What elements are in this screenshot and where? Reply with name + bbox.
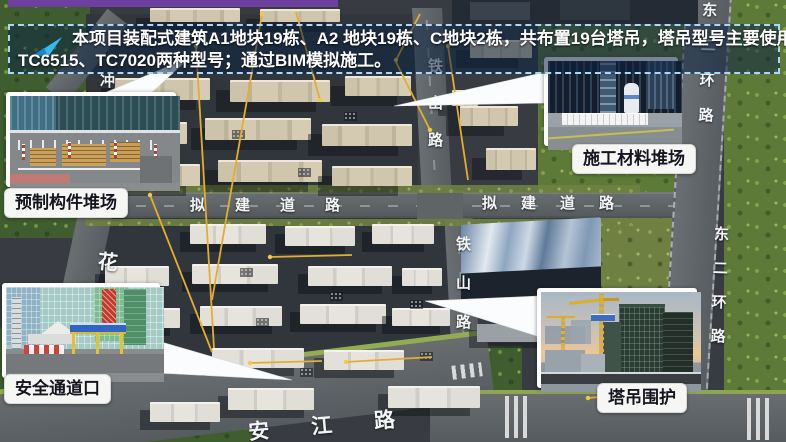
building — [402, 268, 442, 286]
inset-safety-passage — [2, 283, 160, 378]
banner-line-1: 本项目装配式建筑A1地块19栋、A2 地块19栋、C地块2栋，共布置19台塔吊，… — [72, 28, 786, 50]
road-label-tieshan-south: 铁山路 — [452, 236, 473, 353]
window-marker-icon — [300, 368, 313, 377]
info-banner: 本项目装配式建筑A1地块19栋、A2 地块19栋、C地块2栋，共布置19台塔吊，… — [8, 24, 780, 74]
prefab-yard-photo — [10, 96, 180, 191]
building — [460, 106, 518, 126]
building — [372, 224, 434, 244]
bim-site-plan: 铁山路 铁山路 拟建道路 拟建道路 东二环路 东二环路 花 冲 安江路 — [0, 0, 786, 442]
prefab-yard-label: 预制构件堆场 — [4, 188, 128, 218]
material-yard-photo — [548, 61, 682, 150]
building — [285, 226, 355, 246]
building — [150, 402, 220, 422]
banner-line-2: TC6515、TC7020两种型号；通过BIM模拟施工。 — [18, 50, 391, 72]
window-marker-icon — [410, 300, 423, 309]
window-marker-icon — [240, 268, 253, 277]
building — [452, 90, 478, 106]
road-label-nijian-east: 拟建道路 — [482, 192, 638, 213]
inset-prefab-yard — [6, 92, 176, 187]
top-purple-bar — [8, 0, 338, 7]
building — [230, 80, 330, 102]
building — [324, 350, 404, 370]
crosswalk — [505, 396, 531, 438]
building — [260, 9, 340, 22]
window-marker-icon — [256, 318, 269, 327]
crane-enclosure-label: 塔吊围护 — [597, 383, 687, 413]
building — [192, 264, 278, 284]
road-label-tieshan-north: 铁山路 — [424, 58, 445, 169]
dark-building — [470, 2, 530, 20]
building — [392, 308, 450, 326]
crane-enclosure-photo — [541, 292, 701, 392]
road-intersection — [417, 190, 463, 220]
building — [308, 266, 392, 286]
safety-passage-photo — [6, 287, 164, 382]
building — [486, 148, 536, 170]
inset-crane-enclosure — [537, 288, 697, 388]
building — [212, 348, 304, 368]
dark-building — [560, 0, 630, 20]
road-label-nijian-west: 拟建道路 — [190, 194, 370, 215]
building — [205, 118, 311, 140]
window-marker-icon — [232, 130, 245, 139]
building — [228, 388, 314, 410]
building — [190, 224, 266, 244]
building — [345, 76, 411, 96]
window-marker-icon — [344, 112, 357, 121]
building — [150, 8, 240, 22]
building — [200, 306, 282, 326]
building — [332, 166, 412, 186]
window-marker-icon — [420, 352, 433, 361]
crosswalk — [747, 398, 773, 440]
building — [322, 124, 412, 146]
window-marker-icon — [330, 292, 343, 301]
road-label-hua: 花 — [97, 245, 120, 276]
window-marker-icon — [298, 168, 311, 177]
material-yard-label: 施工材料堆场 — [572, 144, 696, 174]
building — [300, 304, 386, 324]
safety-passage-label: 安全通道口 — [4, 374, 111, 404]
